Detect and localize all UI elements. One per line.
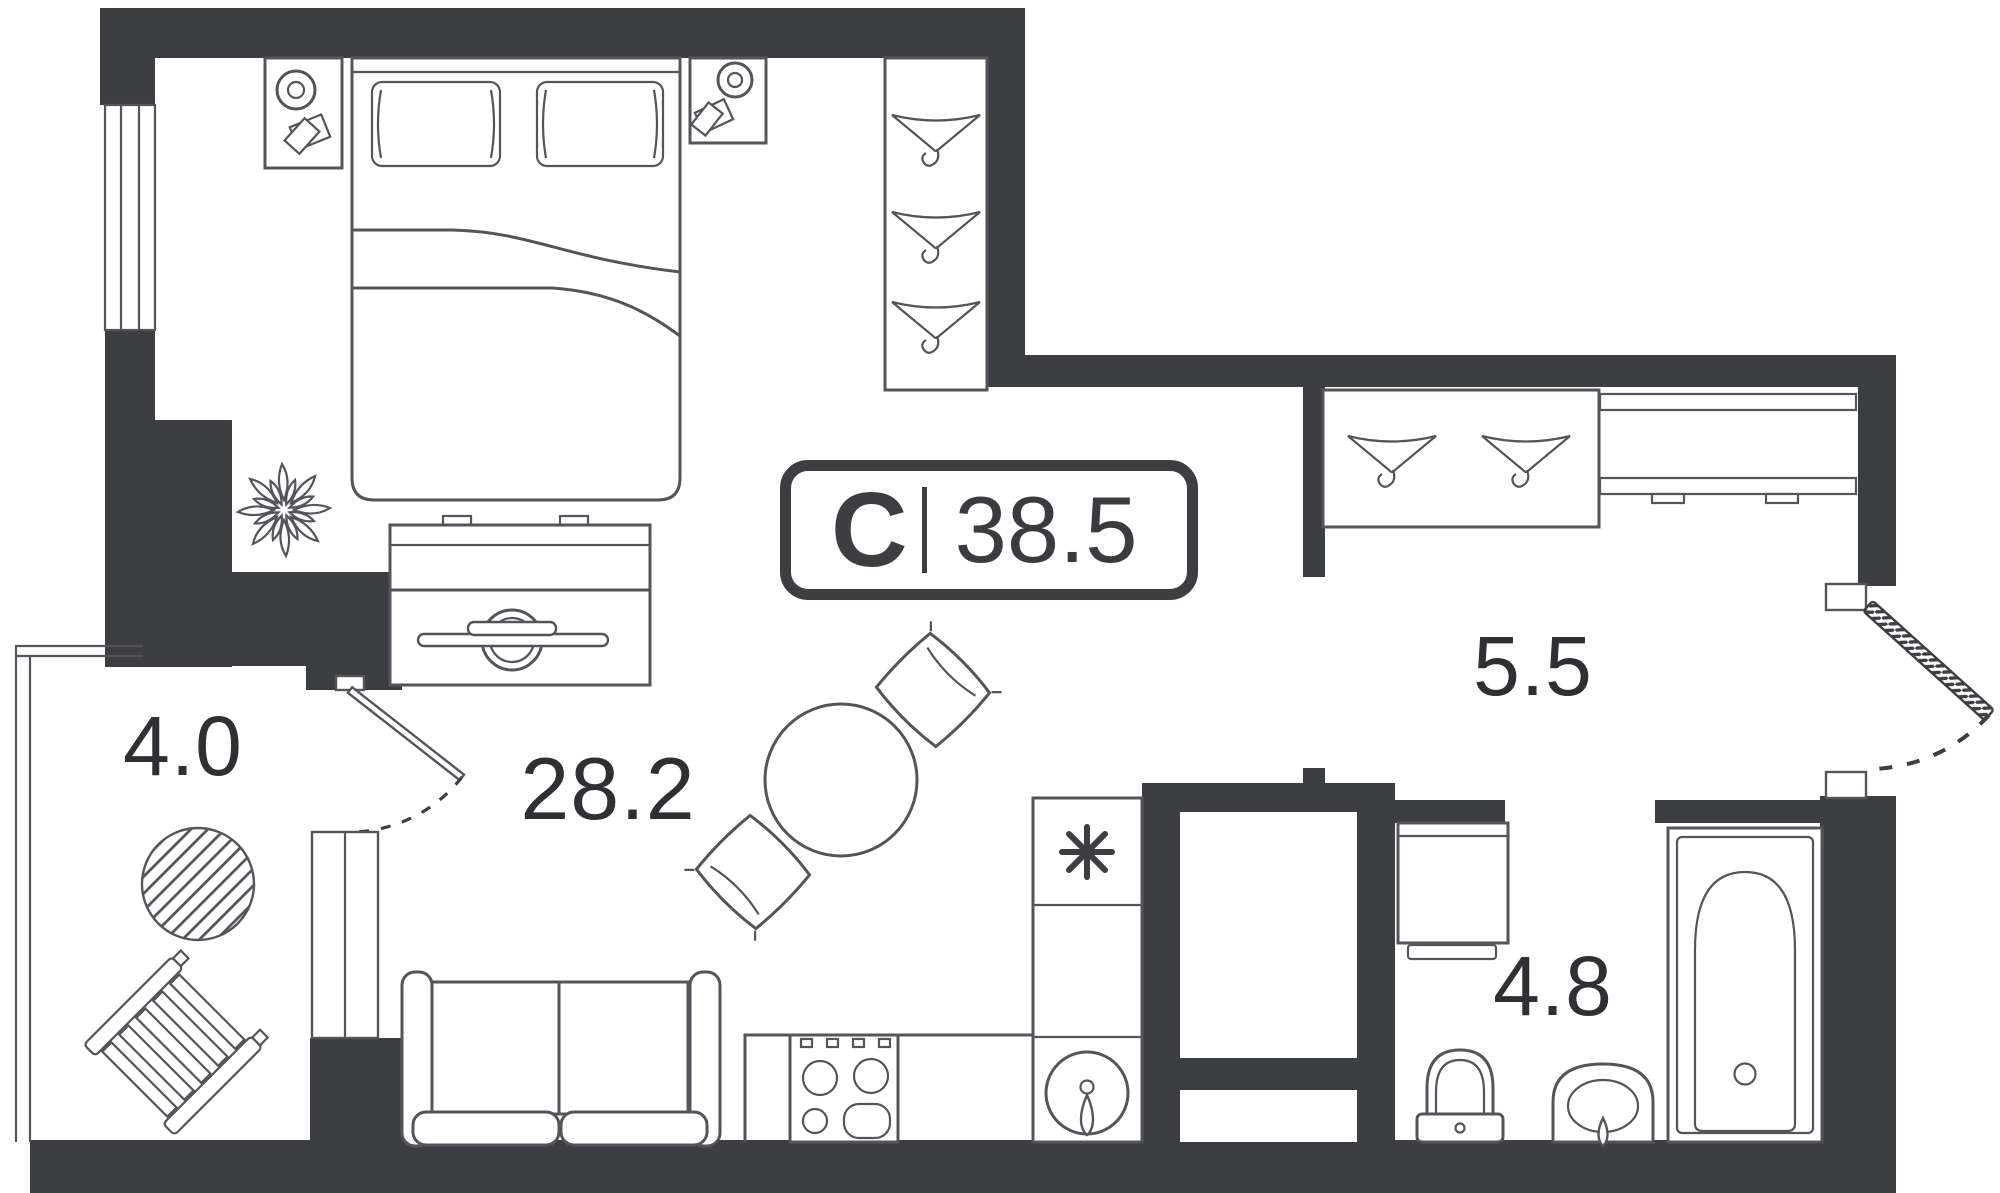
wall-left-block — [105, 420, 232, 667]
plant-icon — [238, 464, 330, 556]
sofa-cushion — [432, 982, 559, 1114]
wall-right-upper — [1858, 355, 1896, 586]
wall-top — [100, 8, 1025, 58]
shaft-cavity — [1180, 812, 1357, 1058]
pillow — [372, 82, 500, 166]
sofa-seat — [413, 1112, 559, 1145]
wall-right-lower — [1820, 796, 1896, 1142]
wall-balcony-corner — [230, 572, 402, 666]
sofa — [402, 972, 720, 1146]
balcony-rug — [142, 828, 254, 940]
unit-type-label: С — [831, 477, 908, 583]
wardrobe-bedroom — [885, 58, 987, 390]
badge-divider — [922, 487, 927, 573]
sofa-seat — [561, 1112, 707, 1145]
faucet-icon — [1599, 1118, 1608, 1146]
door-swing-arc — [1868, 715, 1989, 769]
wall-bedroom-right — [987, 8, 1025, 387]
partition-window — [312, 832, 378, 1038]
room-area-balcony: 4.0 — [88, 698, 278, 795]
toilet — [1417, 1050, 1503, 1142]
shaft-cavity-lower — [1180, 1090, 1357, 1142]
floor-plan: С 38.5 28.2 5.5 4.8 4.0 — [0, 0, 2000, 1193]
door-swing-arc — [350, 777, 462, 832]
bathtub — [1668, 828, 1822, 1142]
wall-bath-top-left — [1395, 800, 1505, 823]
wall-shaft-tick — [1303, 768, 1325, 785]
door-frame-stub — [1826, 584, 1866, 610]
door-frame-stub — [1826, 772, 1866, 798]
hall-wardrobe — [1323, 390, 1599, 527]
balcony-bench — [84, 949, 270, 1135]
pillow — [537, 82, 663, 166]
shoe-shelf — [1600, 394, 1856, 503]
dining-table — [765, 704, 917, 856]
desk — [390, 516, 650, 685]
wall-hall-top — [987, 355, 1896, 387]
wall-left-top — [100, 8, 155, 105]
entry-door — [1826, 584, 1994, 798]
balcony-door-leaf — [348, 687, 464, 780]
wall-bath-top-right — [1655, 800, 1820, 823]
nightstand-left — [265, 58, 342, 168]
bathroom-sink — [1553, 1064, 1653, 1146]
stove — [790, 1035, 898, 1142]
unit-badge: С 38.5 — [780, 460, 1198, 600]
fridge-column — [1033, 798, 1142, 1142]
unit-area-label: 38.5 — [955, 483, 1138, 577]
bed — [352, 58, 680, 500]
wall-bottom — [30, 1140, 1896, 1193]
wall-left-mid — [105, 330, 155, 422]
window-left — [105, 105, 155, 330]
kitchen-counter — [745, 798, 1142, 1142]
room-area-bathroom: 4.8 — [1458, 938, 1648, 1035]
sofa-cushion — [559, 982, 688, 1114]
door-frame-stub — [336, 676, 364, 690]
balcony-rail-left — [16, 646, 30, 1142]
snowflake-icon — [1062, 827, 1112, 877]
room-area-hallway: 5.5 — [1438, 618, 1628, 715]
wall-partition-lower — [310, 1038, 402, 1142]
entry-door-leaf — [1863, 601, 1994, 720]
dining-set — [684, 621, 1001, 940]
room-area-living: 28.2 — [498, 738, 718, 840]
nightstand-right — [690, 58, 766, 143]
